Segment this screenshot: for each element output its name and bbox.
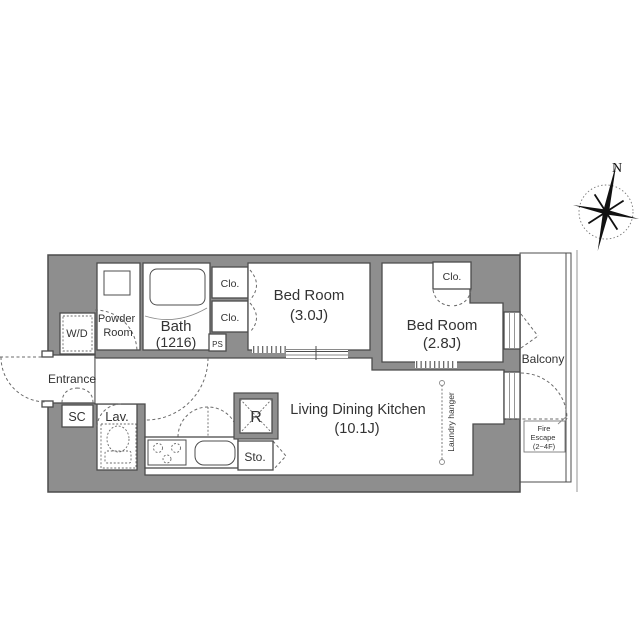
washer-dryer-label: W/D — [66, 328, 87, 340]
laundry-hanger-label: Laundry hanger — [446, 392, 456, 452]
ldk-size-label: (10.1J) — [334, 421, 379, 437]
bedroom-2-size-label: (2.8J) — [423, 335, 461, 352]
door-jamb-top — [42, 351, 53, 357]
pipe-space-label: PS — [212, 340, 223, 349]
kitchen-counter — [145, 437, 238, 468]
closet-3-label: Clo. — [443, 271, 462, 283]
compass-north-label: N — [612, 161, 622, 176]
refrigerator-label: R — [250, 409, 262, 426]
lavatory-label: Lav. — [105, 409, 129, 424]
storage-label: Sto. — [244, 450, 265, 464]
bedroom-1-size-label: (3.0J) — [290, 307, 328, 324]
floor-plan-drawing: Powder Room W/D Bath (1216) Clo. Clo. Cl… — [0, 0, 640, 640]
ldk-label: Living Dining Kitchen — [290, 402, 425, 418]
entrance-label: Entrance — [48, 372, 96, 386]
bedroom-1-label: Bed Room — [274, 287, 345, 304]
closet-1-label: Clo. — [221, 278, 240, 290]
balcony-area — [520, 250, 577, 492]
bedroom-2-balcony-door — [504, 312, 520, 349]
shoe-closet-label: SC — [68, 410, 85, 424]
balcony-label: Balcony — [522, 352, 565, 366]
bedroom-2-label: Bed Room — [407, 317, 478, 334]
floor-plan-page: Powder Room W/D Bath (1216) Clo. Clo. Cl… — [0, 0, 640, 640]
bath-size-label: (1216) — [156, 334, 196, 350]
closet-2-label: Clo. — [221, 312, 240, 324]
bath-label: Bath — [161, 318, 192, 335]
ldk-balcony-door — [504, 372, 520, 419]
